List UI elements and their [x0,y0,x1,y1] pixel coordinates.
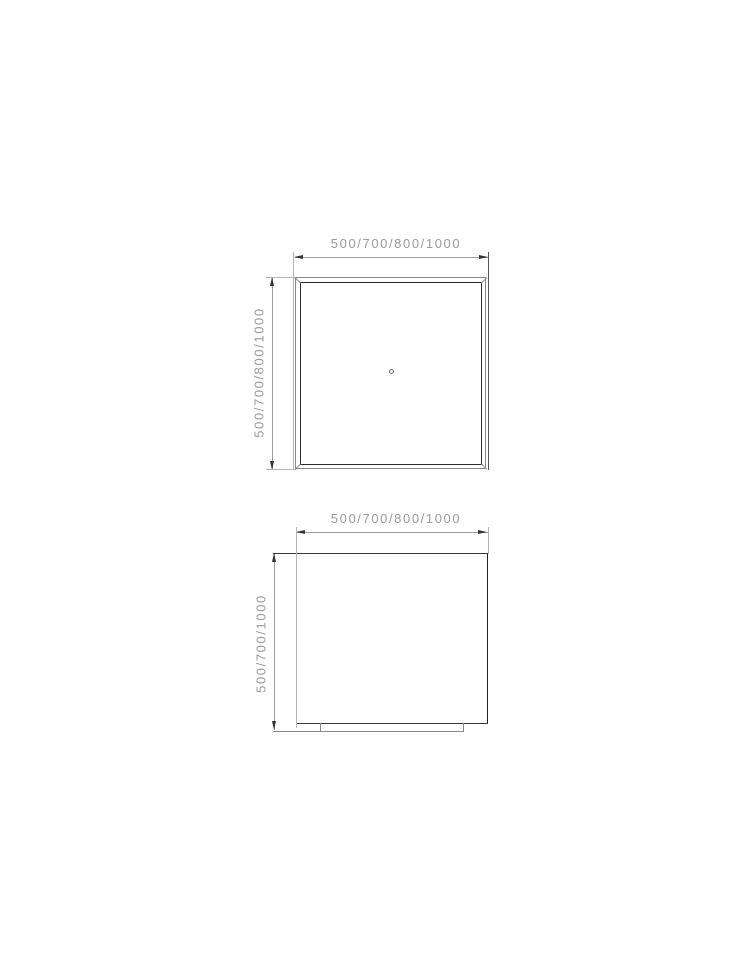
extension-line [488,252,489,470]
arrowhead-right-icon [479,255,488,259]
arrowhead-left-icon [294,255,303,259]
front-view-height-dimension-line [274,553,275,730]
front-view-width-dimension-line [296,532,488,533]
base-plinth-bottom-edge [273,731,464,732]
arrowhead-right-icon [478,530,487,534]
front-view-height-dimension-label: 500/700/1000 [254,544,269,744]
base-plinth-right-edge [463,723,464,731]
arrowhead-left-icon [296,530,305,534]
front-view-width-dimension-label: 500/700/800/1000 [296,511,496,526]
arrowhead-up-icon [270,277,274,286]
arrowhead-up-icon [272,553,276,562]
planter-right-edge [487,553,488,724]
arrowhead-down-icon [272,721,276,730]
extension-line [266,469,296,470]
top-view-width-dimension-label: 500/700/800/1000 [296,236,496,251]
top-view-height-dimension-line [272,277,273,470]
top-view-width-dimension-line [295,257,488,258]
planter-left-edge [296,527,297,728]
extension-line [266,277,296,278]
extension-line [293,252,294,470]
base-plinth-left-edge [320,723,321,731]
top-view-height-dimension-label: 500/700/800/1000 [252,273,267,473]
technical-drawing-sheet: 500/700/800/1000 500/700/800/1000 500/70… [0,0,750,962]
drain-hole [389,369,394,374]
extension-line [488,527,489,554]
planter-top-edge [273,553,488,554]
planter-bottom-edge [297,723,488,724]
